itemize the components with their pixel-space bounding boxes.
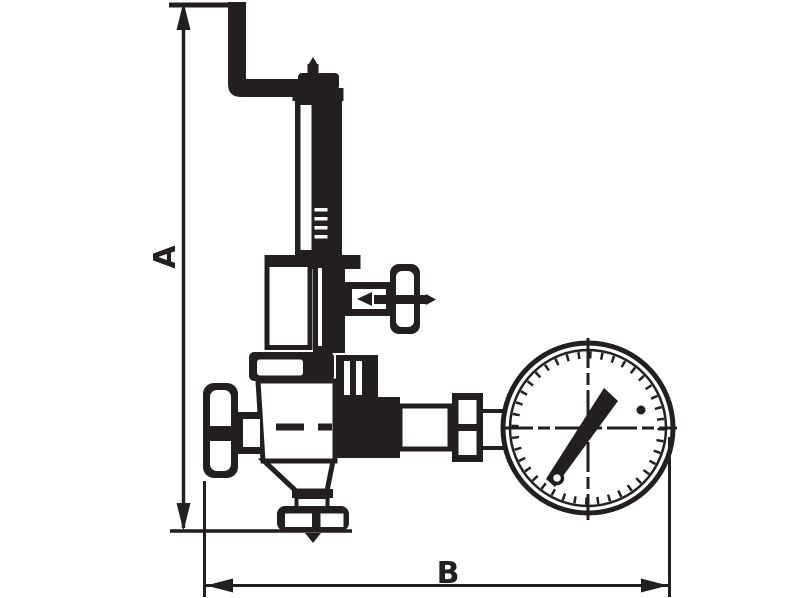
side-valve-spindle-tip [426,294,436,305]
inlet-spindle [210,426,243,441]
bonnet-cap [298,73,339,90]
pressure-gauge [503,338,677,520]
technical-drawing-canvas: A [0,0,800,598]
gauge-dial-dot [637,406,646,415]
side-valve-spindle [374,295,426,304]
side-valve [345,264,436,334]
body-seat-line [276,424,304,431]
flow-direction-arrow [305,533,321,543]
dimension-b-arrow-right [641,579,668,593]
dimension-b-arrow-left [206,579,233,593]
dimension-b-label: B [437,556,460,591]
bonnet-lower-column [313,262,345,353]
union-nut [400,406,450,449]
dimension-a-label: A [148,245,183,269]
branch-pipe [336,397,400,458]
spring-housing [267,265,310,348]
vent-pipe [228,2,302,97]
outlet-neck [264,461,333,491]
gauge-needle-hub [552,473,563,484]
gauge-fittings [336,393,507,462]
body-shell [258,381,335,461]
dimension-a-arrow-down [177,503,191,531]
valve-with-gauge-drawing: A [0,0,800,598]
vent-pipe-elbow [228,2,302,97]
